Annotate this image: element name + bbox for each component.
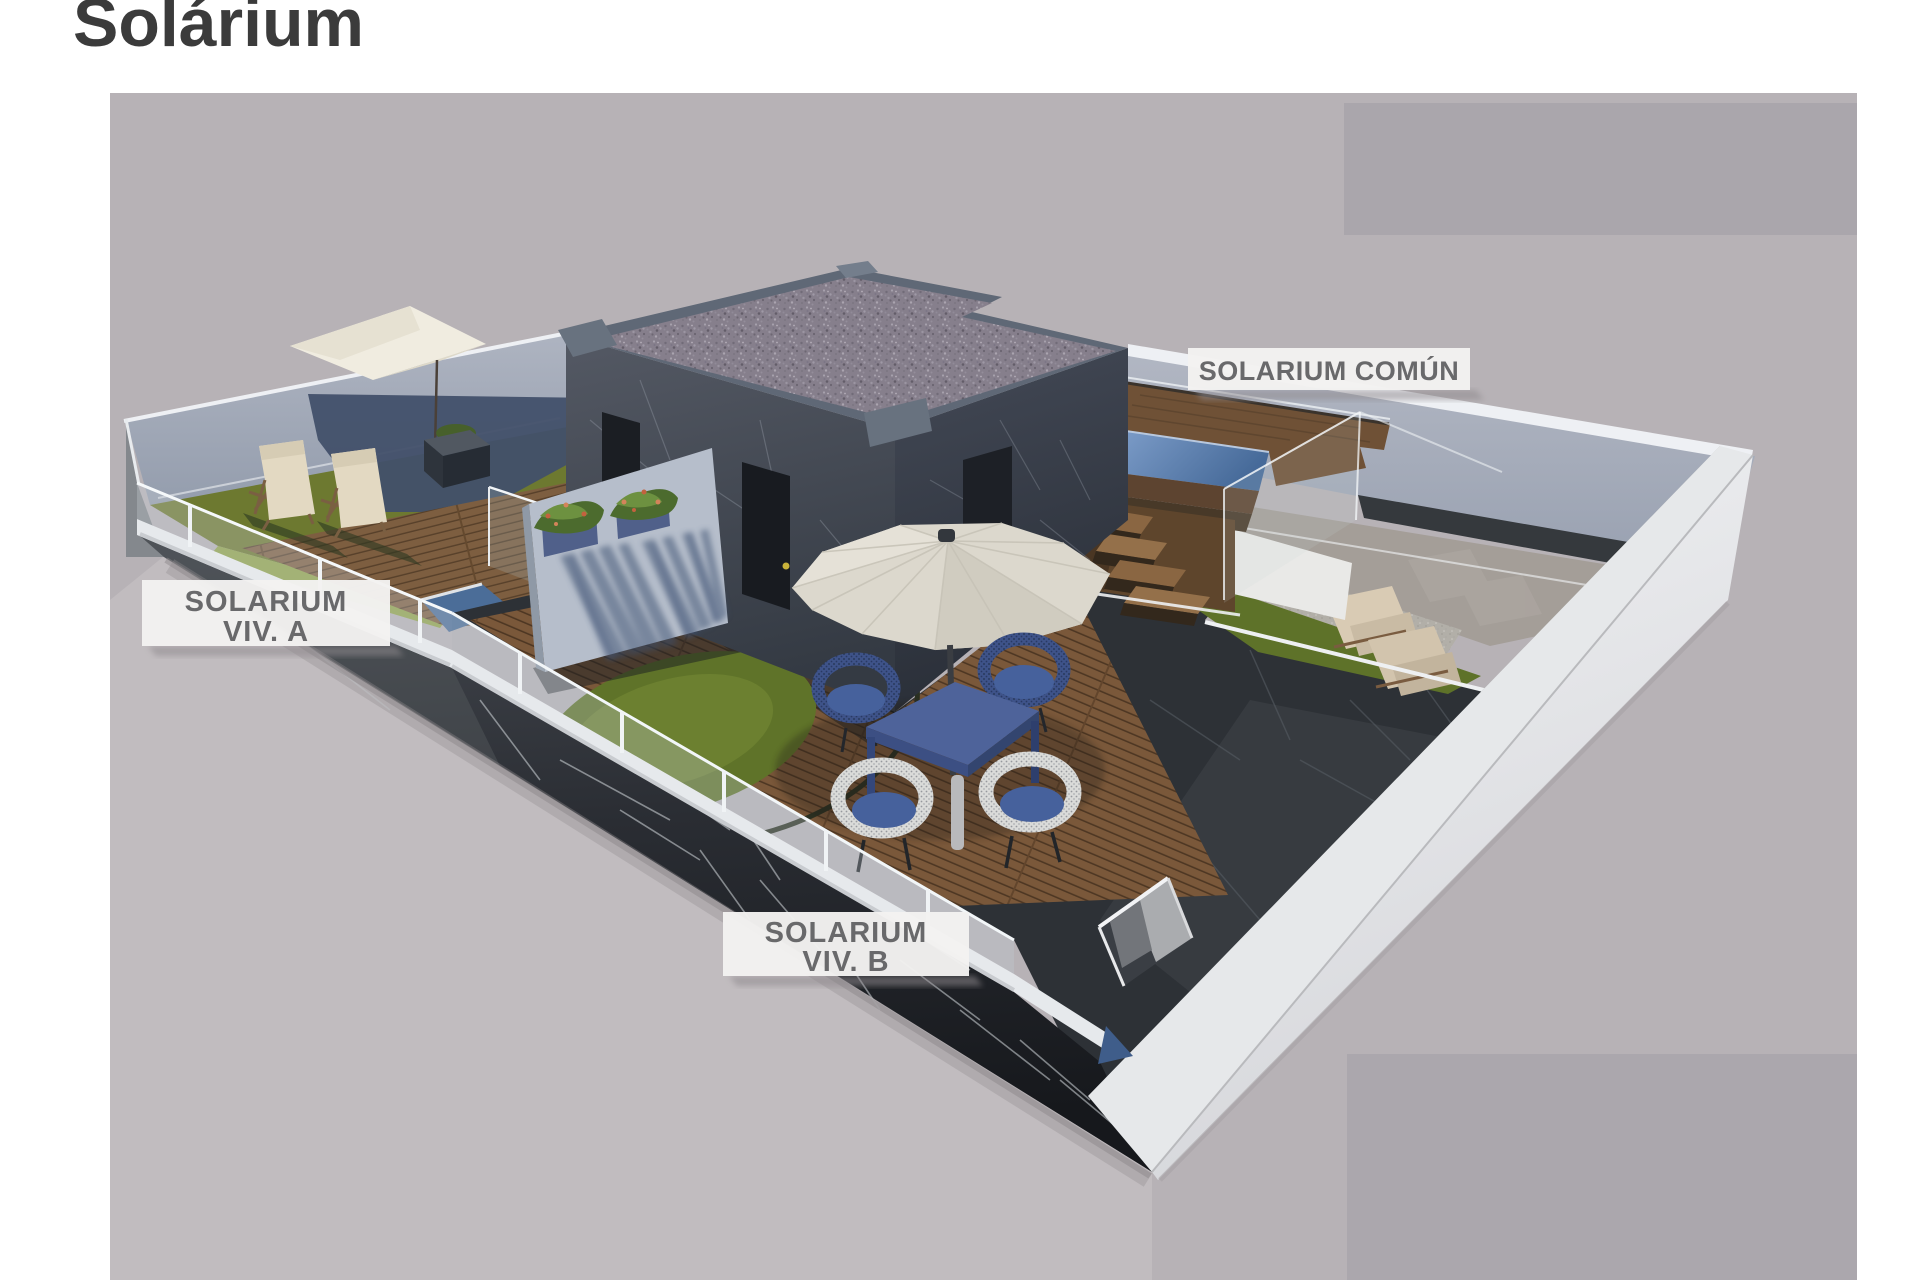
- svg-text:SOLARIUM: SOLARIUM: [185, 586, 348, 618]
- svg-text:SOLARIUM COMÚN: SOLARIUM COMÚN: [1199, 355, 1459, 386]
- svg-text:Solárium: Solárium: [73, 0, 364, 61]
- svg-text:VIV. A: VIV. A: [223, 616, 309, 648]
- svg-text:VIV. B: VIV. B: [802, 946, 889, 978]
- svg-text:SOLARIUM: SOLARIUM: [765, 917, 928, 949]
